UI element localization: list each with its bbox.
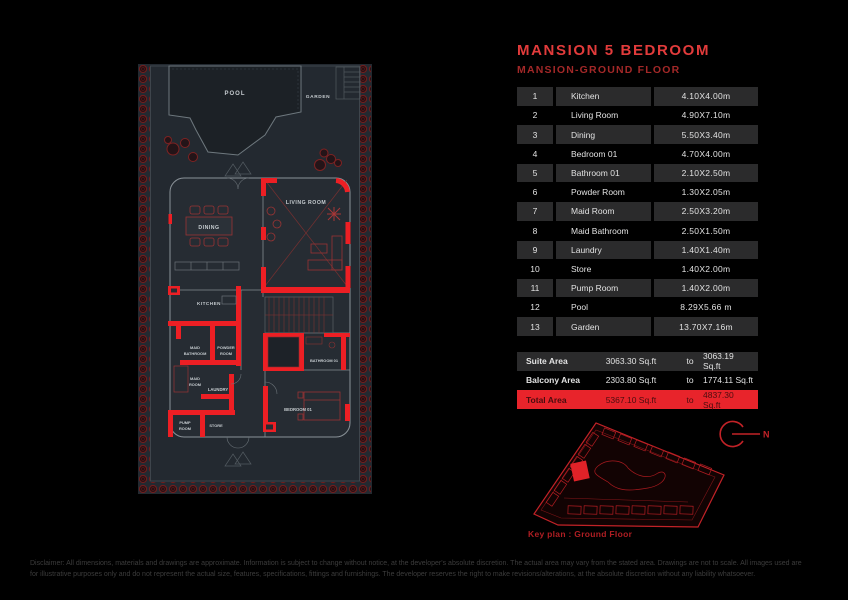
pool-label: POOL (224, 91, 245, 97)
room-dimension: 2.10X2.50m (654, 164, 758, 183)
table-row: 11Pump Room1.40X2.00m (517, 279, 758, 298)
areas-summary-table: Suite Area 3063.30 Sq.ft to 3063.19 Sq.f… (517, 352, 758, 410)
room-dimension: 2.50X3.20m (654, 202, 758, 221)
area-label: Total Area (526, 390, 567, 409)
room-dimension: 1.40X2.00m (654, 279, 758, 298)
room-name: Maid Room (556, 202, 651, 221)
area-value-to: 3063.19 Sq.ft (703, 352, 753, 371)
table-row: 1Kitchen4.10X4.00m (517, 87, 758, 106)
bathroom-01-label: BATHROOM 01 (310, 358, 339, 363)
room-dimension: 1.30X2.05m (654, 183, 758, 202)
north-arrow-icon: N (716, 416, 774, 452)
plant-icon (327, 207, 341, 221)
row-number: 8 (517, 221, 553, 240)
room-dimension: 1.40X1.40m (654, 241, 758, 260)
row-number: 6 (517, 183, 553, 202)
table-row: 12Pool8.29X5.66 m (517, 298, 758, 317)
powder-room-label-1: POWDER (217, 345, 235, 350)
shower-box (268, 337, 299, 367)
table-row: 3Dining5.50X3.40m (517, 125, 758, 144)
room-name: Powder Room (556, 183, 651, 202)
floor-plan-panel: POOL GARDEN LIVING ROOM DINING KITCHEN M… (138, 64, 372, 494)
room-name: Store (556, 260, 651, 279)
north-label: N (763, 430, 770, 440)
row-number: 9 (517, 241, 553, 260)
key-plan (528, 418, 728, 530)
room-name: Bedroom 01 (556, 145, 651, 164)
table-row: 9Laundry1.40X1.40m (517, 241, 758, 260)
boundary-shrubs-left (139, 65, 150, 493)
table-row: 13Garden13.70X7.16m (517, 317, 758, 336)
maid-room-label-2: ROOM (189, 382, 201, 387)
row-number: 10 (517, 260, 553, 279)
floor-plan-drawing: POOL GARDEN LIVING ROOM DINING KITCHEN M… (138, 64, 372, 494)
table-row: 6Powder Room1.30X2.05m (517, 183, 758, 202)
row-number: 1 (517, 87, 553, 106)
living-room-label: LIVING ROOM (286, 200, 326, 206)
key-plan-drawing (528, 418, 728, 530)
area-to-word: to (679, 390, 701, 409)
suite-area-row: Suite Area 3063.30 Sq.ft to 3063.19 Sq.f… (517, 352, 758, 371)
area-label: Balcony Area (526, 371, 580, 390)
wall-box-inset-2 (266, 425, 273, 430)
garden-label: GARDEN (306, 94, 330, 100)
north-arrow: N (716, 416, 774, 452)
room-name: Maid Bathroom (556, 221, 651, 240)
room-name: Pump Room (556, 279, 651, 298)
room-dimension: 4.90X7.10m (654, 106, 758, 125)
area-value-to: 1774.11 Sq.ft (703, 371, 753, 390)
room-name: Dining (556, 125, 651, 144)
area-value-to: 4837.30 Sq.ft (703, 390, 753, 409)
row-number: 5 (517, 164, 553, 183)
table-row: 2Living Room4.90X7.10m (517, 106, 758, 125)
boundary-shrubs-right (360, 65, 371, 493)
maid-room-label-1: MAID (190, 376, 200, 381)
disclaimer-line-2: for illustrative purposes only and do no… (30, 569, 820, 580)
disclaimer-line-1: Disclaimer: All dimensions, materials an… (30, 558, 820, 569)
row-number: 13 (517, 317, 553, 336)
room-dimension: 8.29X5.66 m (654, 298, 758, 317)
row-number: 4 (517, 145, 553, 164)
row-number: 11 (517, 279, 553, 298)
area-value-from: 2303.80 Sq.ft (589, 371, 673, 390)
bedroom-01-label: BEDROOM 01 (284, 407, 312, 412)
store-label: STORE (209, 423, 223, 428)
dining-label: DINING (198, 225, 219, 231)
table-row: 4Bedroom 014.70X4.00m (517, 145, 758, 164)
room-dimension: 1.40X2.00m (654, 260, 758, 279)
room-name: Living Room (556, 106, 651, 125)
row-number: 2 (517, 106, 553, 125)
table-row: 8Maid Bathroom2.50X1.50m (517, 221, 758, 240)
row-number: 3 (517, 125, 553, 144)
balcony-area-row: Balcony Area 2303.80 Sq.ft to 1774.11 Sq… (517, 371, 758, 390)
room-name: Bathroom 01 (556, 164, 651, 183)
room-name: Garden (556, 317, 651, 336)
page-subtitle: MANSION-GROUND FLOOR (517, 64, 680, 76)
rooms-table: 1Kitchen4.10X4.00m 2Living Room4.90X7.10… (517, 87, 758, 336)
powder-room-label-2: ROOM (220, 351, 232, 356)
table-row: 7Maid Room2.50X3.20m (517, 202, 758, 221)
area-value-from: 3063.30 Sq.ft (589, 352, 673, 371)
room-dimension: 5.50X3.40m (654, 125, 758, 144)
kitchen-label: KITCHEN (197, 301, 221, 306)
area-to-word: to (679, 371, 701, 390)
page-title: MANSION 5 BEDROOM (517, 42, 710, 59)
room-name: Laundry (556, 241, 651, 260)
keyplan-caption: Key plan : Ground Floor (528, 529, 632, 539)
disclaimer: Disclaimer: All dimensions, materials an… (30, 558, 820, 580)
room-dimension: 4.70X4.00m (654, 145, 758, 164)
area-label: Suite Area (526, 352, 568, 371)
laundry-label: LAUNDRY (208, 387, 229, 392)
area-to-word: to (679, 352, 701, 371)
room-name: Kitchen (556, 87, 651, 106)
pump-room-label-2: ROOM (179, 426, 191, 431)
table-row: 5Bathroom 012.10X2.50m (517, 164, 758, 183)
area-value-from: 5367.10 Sq.ft (589, 390, 673, 409)
row-number: 12 (517, 298, 553, 317)
room-dimension: 13.70X7.16m (654, 317, 758, 336)
room-name: Pool (556, 298, 651, 317)
maid-bathroom-label-1: MAID (190, 345, 200, 350)
room-dimension: 2.50X1.50m (654, 221, 758, 240)
table-row: 10Store1.40X2.00m (517, 260, 758, 279)
total-area-row: Total Area 5367.10 Sq.ft to 4837.30 Sq.f… (517, 390, 758, 409)
pump-room-label-1: PUMP (179, 420, 191, 425)
boundary-shrubs-bottom (150, 482, 360, 493)
row-number: 7 (517, 202, 553, 221)
room-dimension: 4.10X4.00m (654, 87, 758, 106)
maid-bathroom-label-2: BATHROOM (184, 351, 207, 356)
wall-box-inset-1 (171, 289, 177, 293)
